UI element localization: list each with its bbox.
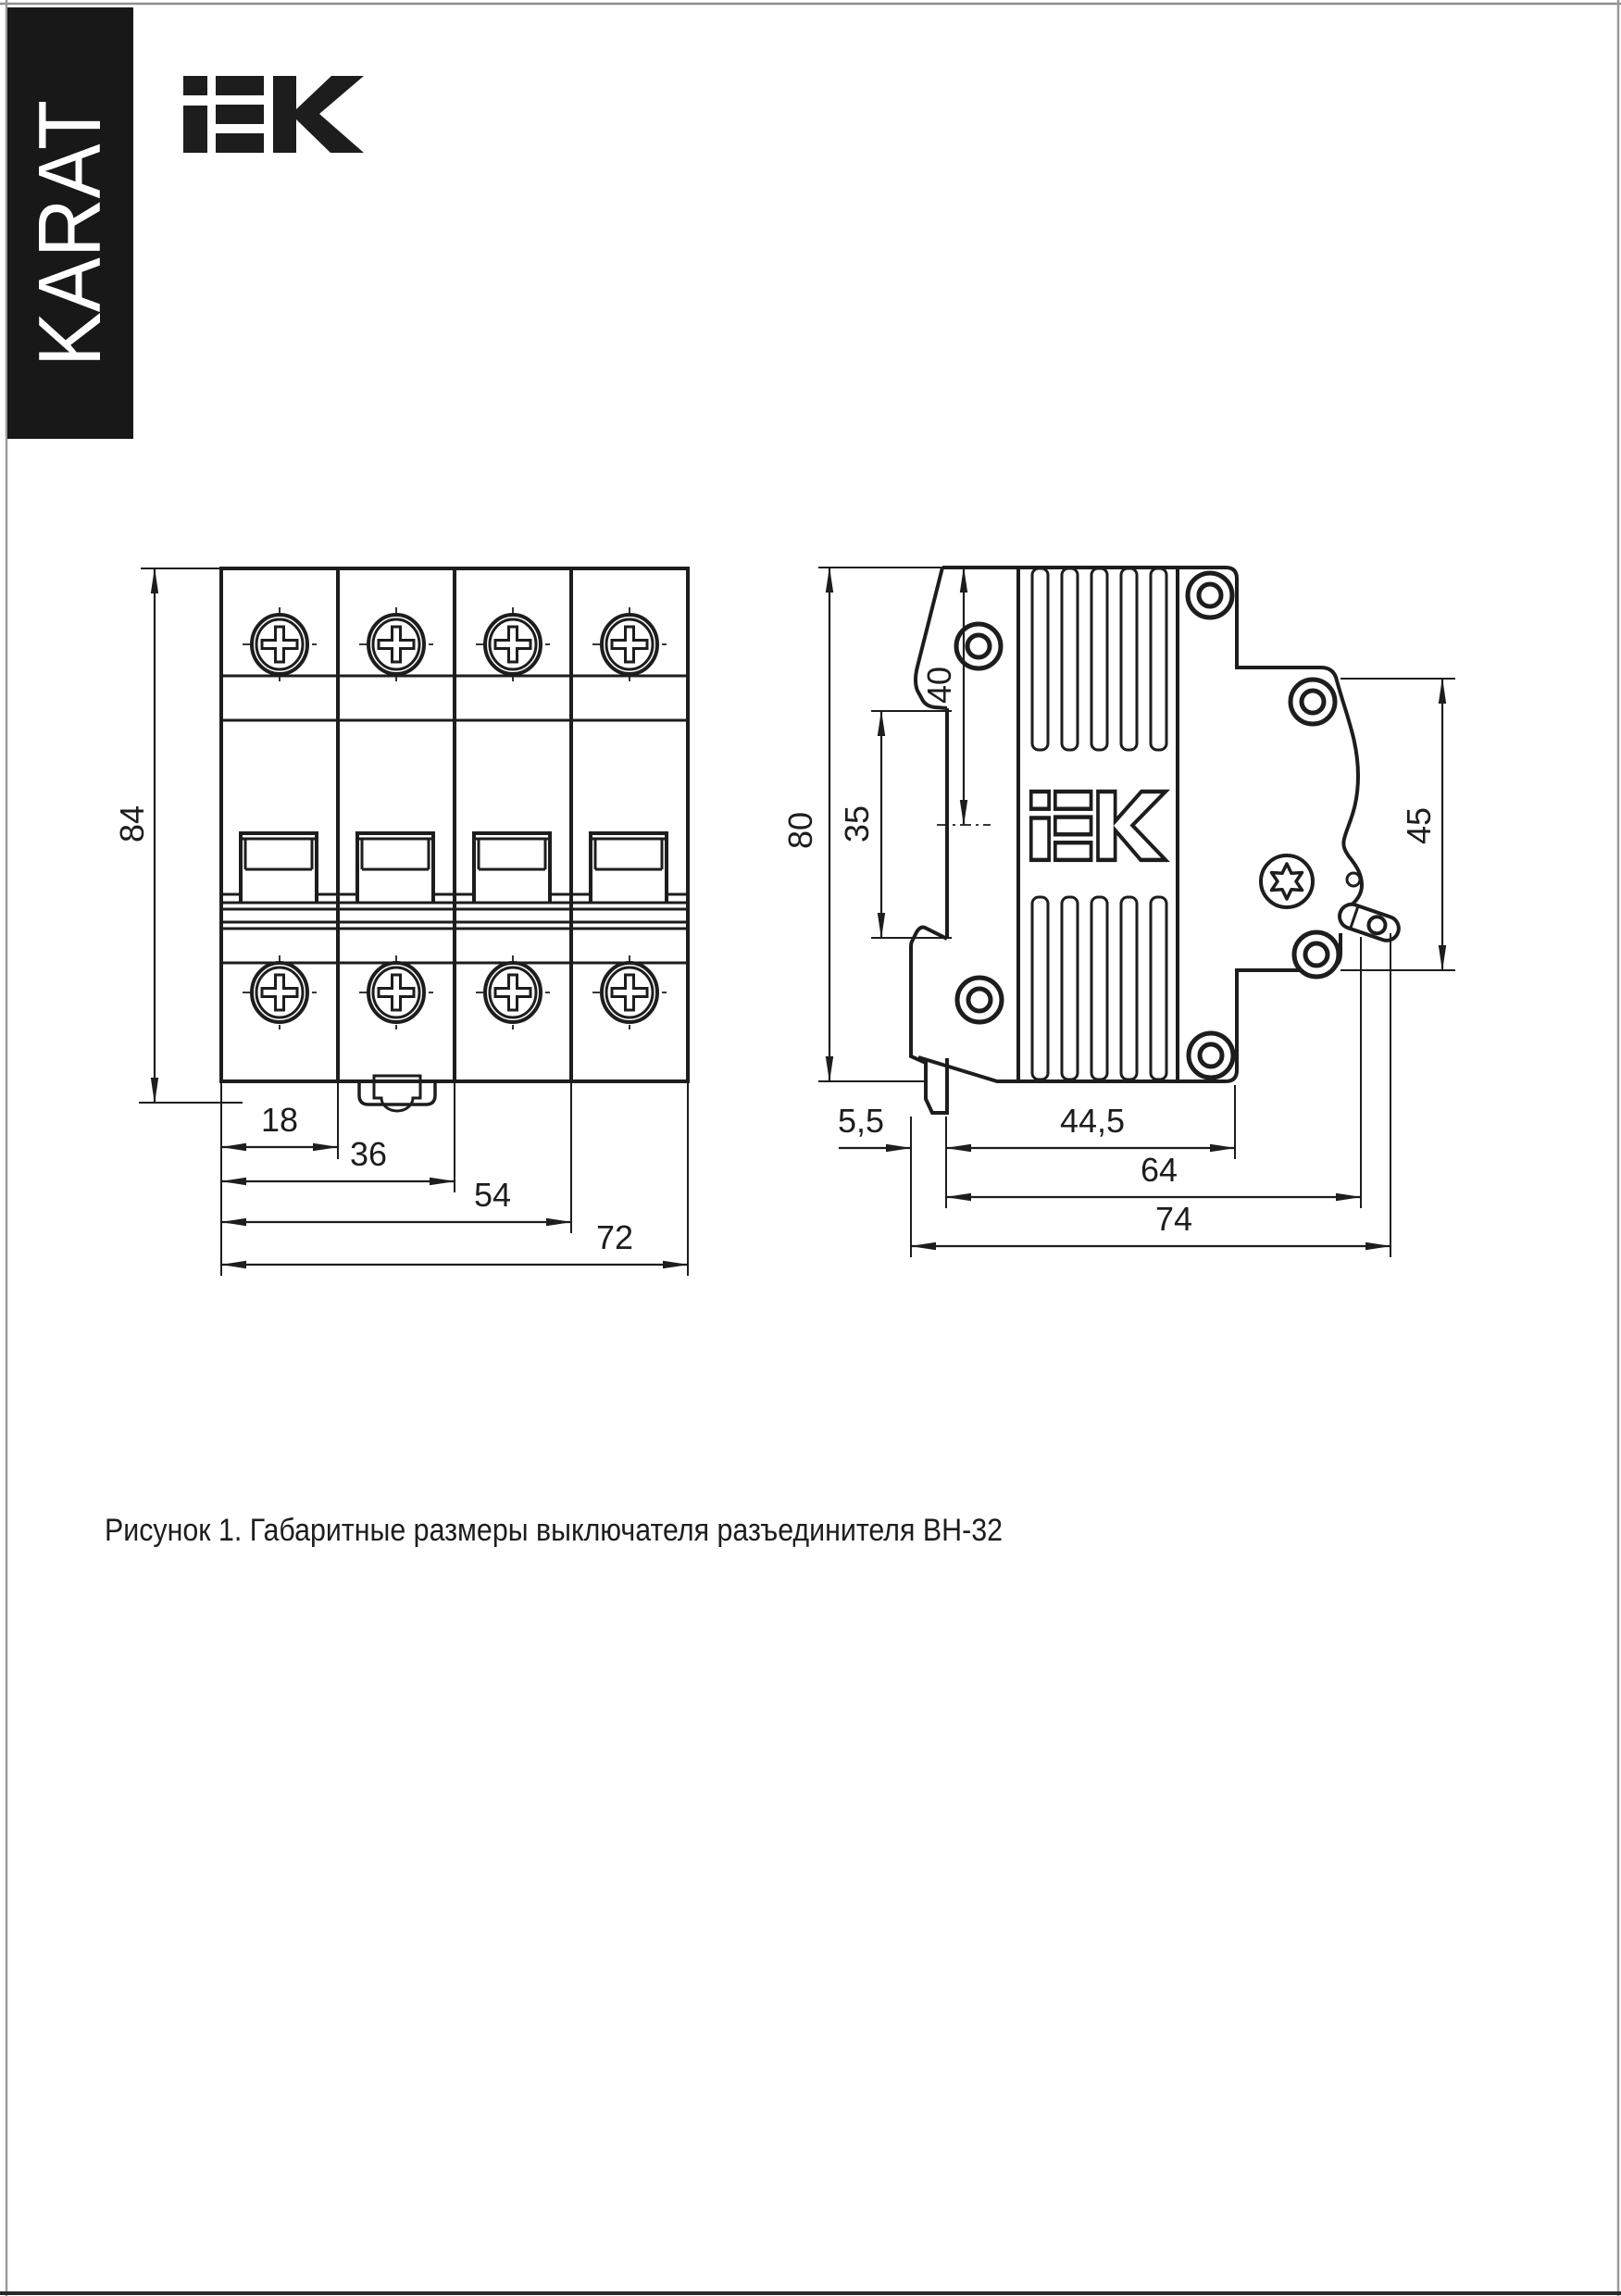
phillips-screw-icon	[243, 955, 317, 1029]
dim-label-64: 64	[1141, 1151, 1178, 1189]
switch-handle	[455, 833, 571, 903]
case-screws	[956, 573, 1339, 1078]
vent-slot	[1032, 568, 1048, 750]
dim-64: 64	[946, 1151, 1361, 1197]
dim-label-18: 18	[261, 1101, 298, 1139]
screw-boss-icon	[1294, 932, 1339, 977]
figure-caption: Рисунок 1. Габаритные размеры выключател…	[105, 1513, 1003, 1548]
karat-banner: KARAT	[7, 7, 133, 439]
toggle-lever	[1337, 901, 1403, 943]
vent-slot	[1121, 897, 1137, 1079]
screw-boss-icon	[1188, 573, 1232, 618]
dim-18: 18	[221, 1101, 338, 1147]
karat-banner-label: KARAT	[20, 100, 119, 367]
dim-label-80: 80	[781, 812, 819, 849]
dim-label-45: 45	[1400, 807, 1438, 844]
phillips-screw-icon	[592, 607, 667, 681]
phillips-screw-icon	[476, 955, 550, 1029]
dim-label-44-5: 44,5	[1060, 1102, 1125, 1140]
dim-54: 54	[221, 1176, 571, 1222]
vent-slot	[1151, 568, 1166, 750]
dim-35: 35	[838, 711, 952, 938]
dim-74: 74	[911, 1200, 1390, 1246]
phillips-screw-icon	[243, 607, 317, 681]
pivot-pin-icon	[1347, 873, 1360, 886]
vent-slot	[1062, 568, 1078, 750]
phillips-screw-icon	[359, 607, 433, 681]
datasheet-page: KARAT	[0, 0, 1621, 2296]
switch-handle	[571, 833, 688, 903]
dim-label-54: 54	[474, 1176, 511, 1214]
vent-slot	[1091, 897, 1107, 1079]
screw-boss-icon	[1291, 680, 1335, 724]
screw-boss-icon	[957, 978, 1002, 1022]
phillips-screw-icon	[476, 607, 550, 681]
dim-5-5: 5,5	[838, 1102, 911, 1148]
phillips-screw-icon	[592, 955, 667, 1029]
switch-handle	[221, 833, 338, 903]
dim-label-5-5: 5,5	[838, 1102, 884, 1140]
vent-slot	[1091, 568, 1107, 750]
dim-label-35: 35	[838, 805, 876, 842]
dim-72: 72	[221, 1218, 688, 1265]
front-view: 84 18 36 54 72	[113, 568, 688, 1276]
dim-label-84: 84	[113, 805, 151, 842]
iek-embossed-logo	[1031, 792, 1166, 860]
dim-label-36: 36	[350, 1135, 387, 1173]
front-width-dims: 18 36 54 72	[221, 1083, 688, 1276]
dim-label-72: 72	[596, 1218, 633, 1256]
dim-40: 40	[920, 568, 991, 825]
vent-slot	[1151, 897, 1166, 1079]
screw-boss-icon	[1189, 1033, 1233, 1078]
phillips-screw-icon	[359, 955, 433, 1029]
torx-screw-icon	[1261, 855, 1313, 907]
side-depth-dims: 5,5 44,5 64 74	[838, 933, 1390, 1257]
vent-slot	[1032, 897, 1048, 1079]
iek-logo	[183, 76, 364, 153]
dim-label-40: 40	[920, 667, 958, 704]
vent-slot	[1121, 568, 1137, 750]
dim-44-5: 44,5	[946, 1102, 1235, 1148]
dim-label-74: 74	[1155, 1200, 1192, 1238]
switch-handle	[338, 833, 455, 903]
vent-slot	[1062, 897, 1078, 1079]
side-view: 80 40 35 45 5,5	[781, 568, 1455, 1257]
